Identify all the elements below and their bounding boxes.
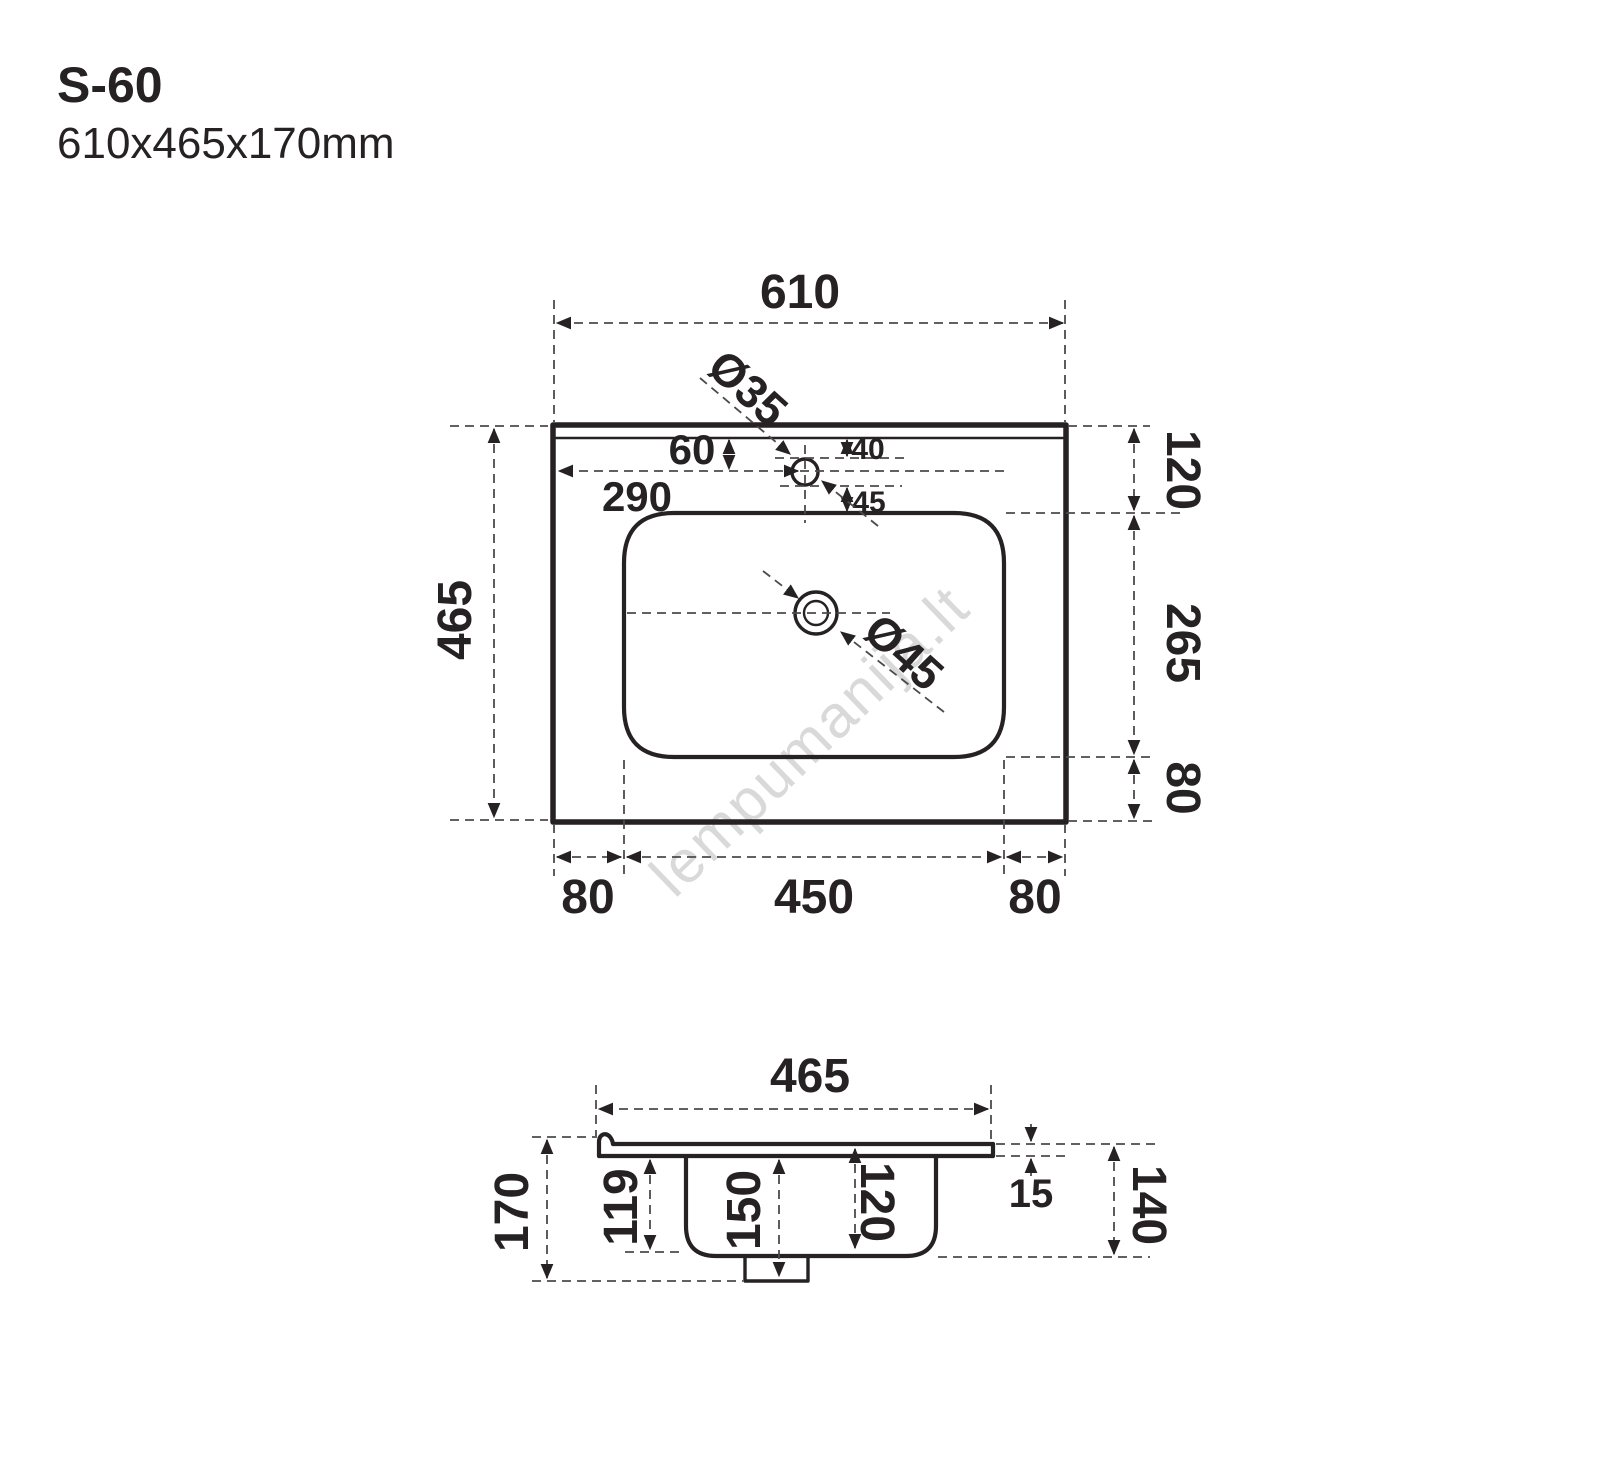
dim-label-80-bottom-right: 80 [1008,871,1061,924]
dim-label-120-section: 120 [850,1162,903,1242]
dim-label-150: 150 [718,1170,771,1250]
dim-label-80-right: 80 [1156,761,1209,814]
section-view: 465 170 119 150 120 [486,1050,1175,1281]
model-title: S-60 [57,57,163,113]
dim-label-465: 465 [429,580,482,660]
dim-total-depth: 150 [718,1160,779,1276]
dim-label-60: 60 [669,426,716,473]
dim-label-45: 45 [852,486,885,519]
dim-plan-width: 610 [554,266,1065,422]
dim-faucet-offset: 60 [669,426,729,473]
dim-section-width: 465 [596,1050,991,1142]
dim-label-80-bottom-left: 80 [561,871,614,924]
front-lip-profile [599,1134,613,1156]
dim-label-610: 610 [760,266,840,319]
leader-line [763,571,798,598]
dim-label-40: 40 [851,433,884,466]
dim-label-faucet-diameter: Ø35 [698,340,797,437]
drain-stub-outline [745,1257,808,1281]
dim-label-119: 119 [595,1168,648,1245]
technical-drawing-page: lempumanija.lt S-60 610x465x170mm 610 [0,0,1600,1482]
dim-label-15: 15 [1009,1172,1054,1216]
dim-label-450: 450 [774,871,854,924]
dim-plan-right-stack: 120 265 80 [1006,426,1209,821]
dim-plan-height: 465 [429,426,548,820]
dim-label-290: 290 [602,473,672,520]
dim-hole-to-basin: 45 [847,486,886,519]
dim-label-120: 120 [1156,430,1209,510]
dim-bowl-front-depth: 119 [595,1160,684,1252]
dim-label-140: 140 [1122,1165,1175,1245]
dim-bowl-inner-depth: 120 [850,1149,903,1248]
dim-label-170: 170 [486,1172,539,1252]
dim-label-265: 265 [1156,603,1209,683]
sink-technical-drawing: lempumanija.lt S-60 610x465x170mm 610 [0,0,1600,1482]
plan-view: 610 465 60 290 40 45 [429,266,1209,924]
dim-back-height: 140 [938,1147,1175,1257]
model-dimensions: 610x465x170mm [57,119,395,168]
dim-hole-to-top: 40 [847,433,885,466]
dim-label-465-section: 465 [770,1050,850,1103]
